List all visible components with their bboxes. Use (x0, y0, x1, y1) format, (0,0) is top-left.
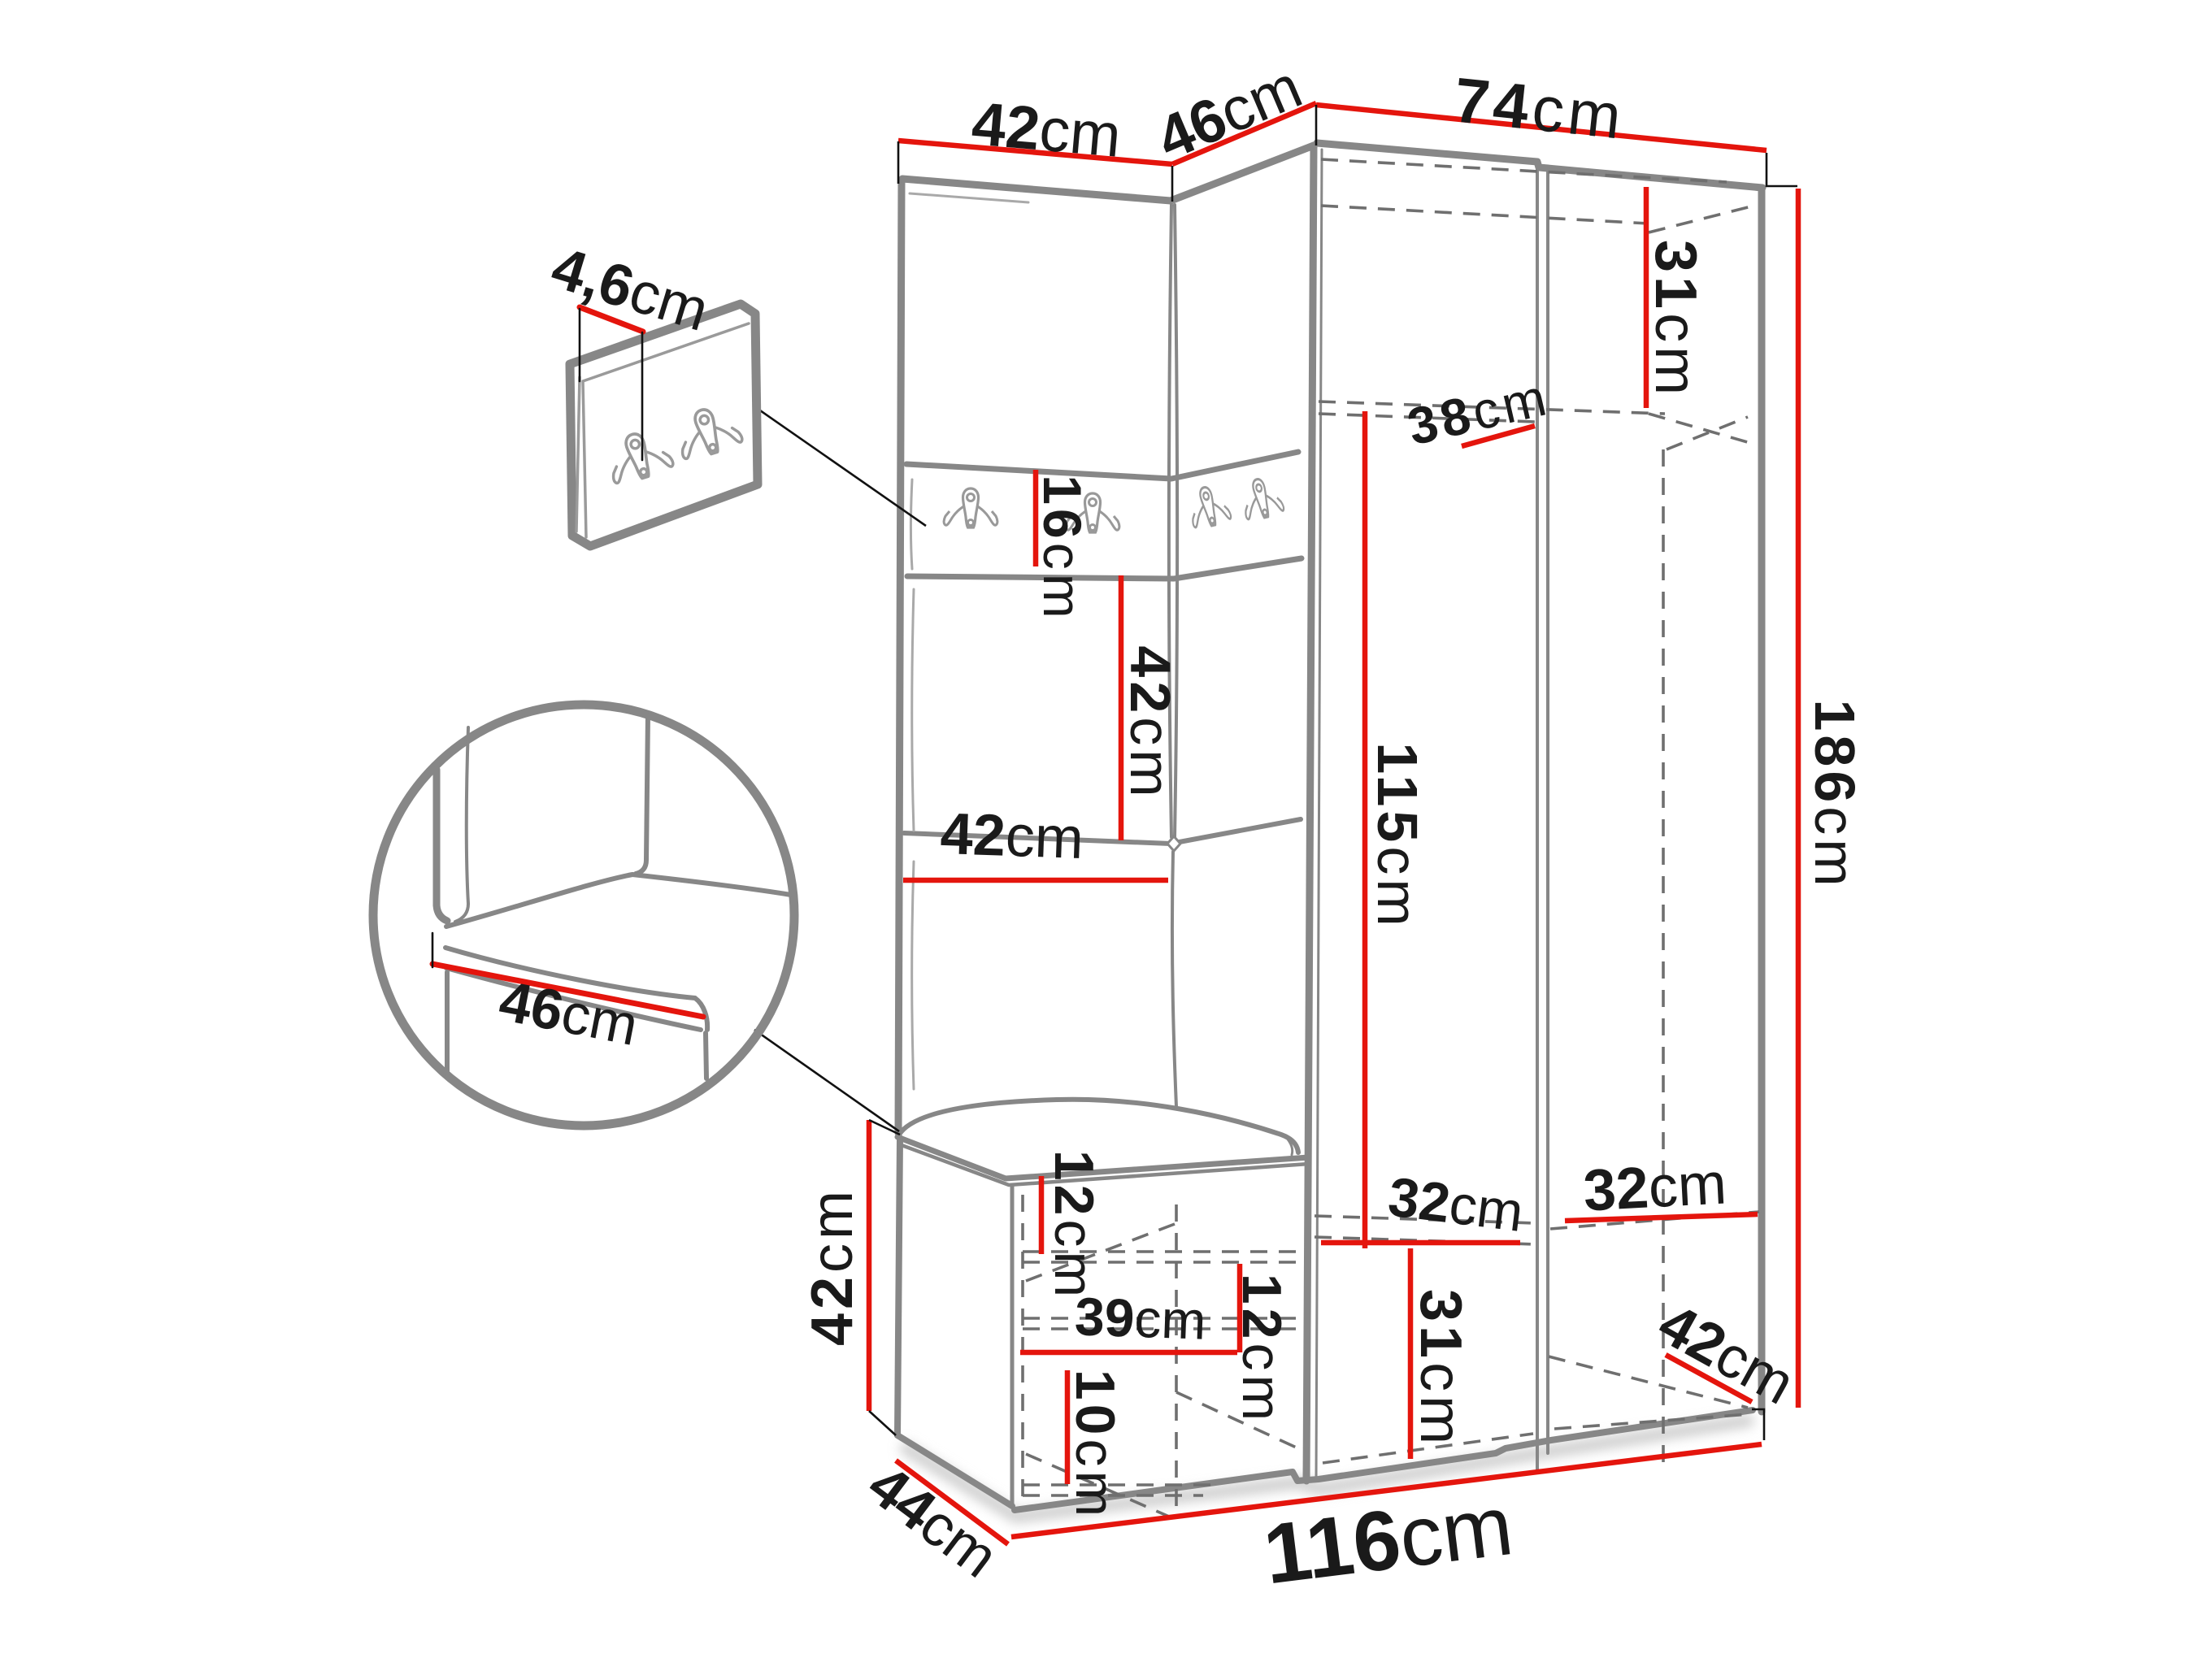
svg-text:16cm: 16cm (1032, 475, 1093, 622)
svg-text:42cm: 42cm (1119, 645, 1182, 801)
svg-text:32cm: 32cm (1582, 1151, 1728, 1223)
svg-text:10cm: 10cm (1064, 1369, 1126, 1521)
svg-text:42cm: 42cm (800, 1187, 865, 1346)
svg-text:31cm: 31cm (1643, 240, 1708, 399)
svg-text:31cm: 31cm (1408, 1289, 1473, 1448)
svg-text:12cm: 12cm (1231, 1274, 1293, 1425)
svg-text:115cm: 115cm (1366, 742, 1429, 930)
svg-text:186cm: 186cm (1803, 699, 1867, 890)
svg-text:12cm: 12cm (1043, 1150, 1105, 1301)
svg-text:42cm: 42cm (969, 89, 1123, 170)
svg-text:42cm: 42cm (939, 801, 1084, 871)
